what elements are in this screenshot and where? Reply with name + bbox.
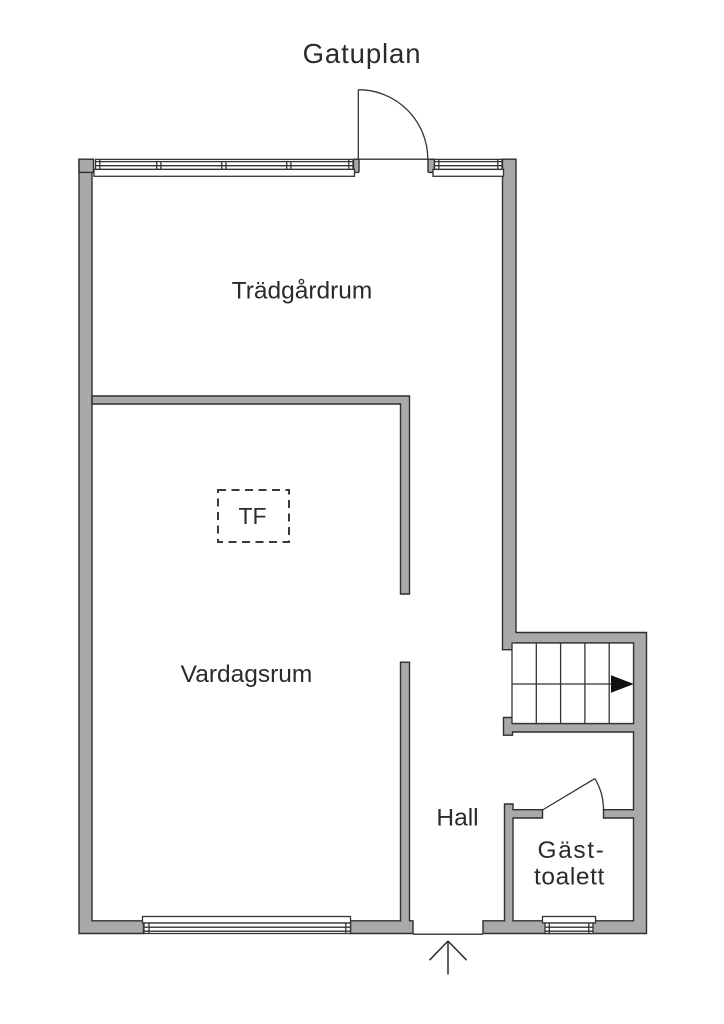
svg-text:Gäst-: Gäst- (538, 837, 606, 864)
svg-text:Vardagsrum: Vardagsrum (181, 661, 313, 688)
svg-text:TF: TF (238, 503, 266, 529)
svg-text:Hall: Hall (436, 805, 478, 832)
svg-text:toalett: toalett (534, 864, 605, 891)
svg-text:Trädgårdrum: Trädgårdrum (232, 278, 373, 305)
svg-text:Gatuplan: Gatuplan (303, 38, 422, 69)
